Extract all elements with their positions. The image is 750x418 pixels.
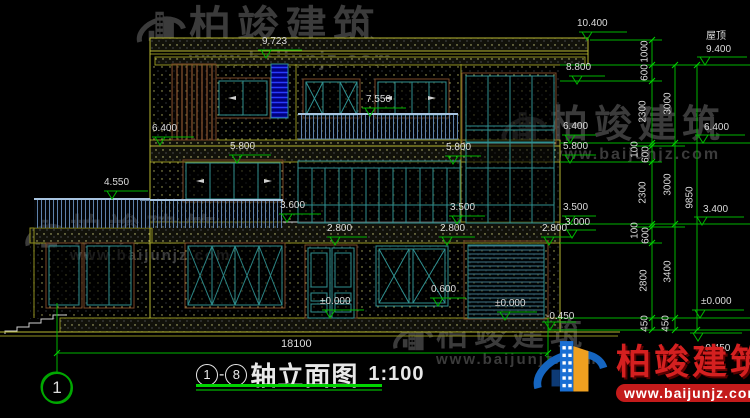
level-triangle-icon — [107, 191, 117, 199]
balcony-railing-3f — [298, 114, 458, 139]
roof — [150, 38, 588, 65]
level-triangle-icon — [700, 57, 710, 65]
axis-bubble-number: 1 — [52, 378, 61, 398]
balcony-railing-2f — [140, 200, 283, 228]
level-triangle-icon — [572, 76, 582, 84]
brand-name: 柏竣建筑 — [616, 344, 750, 383]
garage-shutter-door — [464, 241, 548, 319]
brand-url: www.baijunjz.com — [616, 384, 750, 402]
level-triangle-icon — [565, 216, 575, 224]
level-triangle-icon — [698, 135, 708, 143]
cad-elevation-screenshot: 柏竣建筑www.baijunjz.com 柏竣建筑www.baijunjz.co… — [0, 0, 750, 418]
porch-railing — [34, 199, 150, 228]
brand-logo: 柏竣建筑 www.baijunjz.com — [528, 331, 750, 415]
title-underline — [196, 384, 382, 387]
drawing-title: 1 - 8 轴立面图 1:100 — [196, 356, 425, 393]
title-underline-secondary — [196, 389, 382, 391]
title-text: 轴立面图 — [250, 356, 358, 393]
level-triangle-icon — [565, 135, 575, 143]
wood-slat-screen — [172, 64, 216, 140]
stair-glazing-blue — [271, 64, 288, 118]
title-dash: - — [219, 366, 224, 384]
title-axis-bubble-end: 8 — [225, 364, 247, 386]
title-axis-bubble-start: 1 — [196, 364, 218, 386]
title-scale: 1:100 — [368, 363, 424, 386]
axis-bubble-1: 1 — [41, 372, 73, 404]
brand-building-glyph-color — [528, 331, 612, 415]
